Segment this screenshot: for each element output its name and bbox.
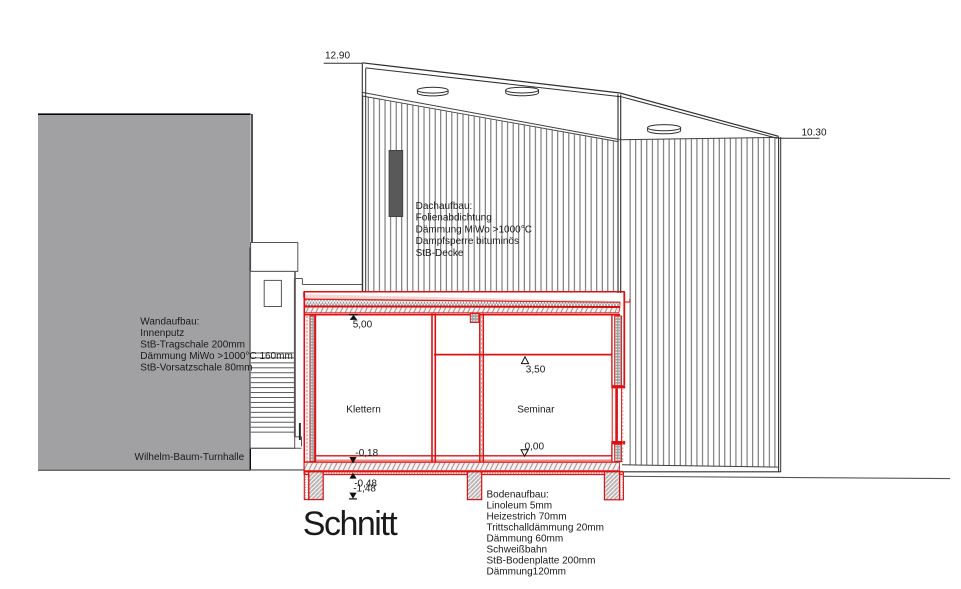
svg-text:Linoleum 5mm: Linoleum 5mm bbox=[487, 500, 553, 511]
svg-text:StB-Decke: StB-Decke bbox=[416, 248, 464, 259]
svg-text:Dampfsperre bituminös: Dampfsperre bituminös bbox=[416, 236, 519, 247]
svg-text:Dämmung MiWo >1000°C 160mm: Dämmung MiWo >1000°C 160mm bbox=[140, 351, 292, 362]
svg-text:Bodenaufbau:: Bodenaufbau: bbox=[487, 489, 549, 500]
svg-text:Innenputz: Innenputz bbox=[140, 328, 184, 339]
svg-text:Seminar: Seminar bbox=[517, 404, 555, 415]
svg-text:StB-Tragschale 200mm: StB-Tragschale 200mm bbox=[140, 340, 245, 351]
svg-text:StB-Vorsatzschale 80mm: StB-Vorsatzschale 80mm bbox=[140, 362, 252, 373]
svg-text:10.30: 10.30 bbox=[802, 127, 827, 138]
svg-text:Dachaufbau:: Dachaufbau: bbox=[416, 201, 473, 212]
svg-text:12.90: 12.90 bbox=[325, 51, 350, 62]
svg-text:Dämmung120mm: Dämmung120mm bbox=[487, 567, 566, 578]
svg-text:StB-Bodenplatte 200mm: StB-Bodenplatte 200mm bbox=[487, 556, 596, 567]
svg-text:5,00: 5,00 bbox=[353, 319, 373, 330]
svg-text:-0,18: -0,18 bbox=[355, 448, 378, 459]
svg-text:Trittschalldämmung 20mm: Trittschalldämmung 20mm bbox=[487, 522, 604, 533]
svg-text:Wilhelm-Baum-Turnhalle: Wilhelm-Baum-Turnhalle bbox=[135, 452, 245, 463]
svg-text:Klettern: Klettern bbox=[346, 404, 380, 415]
svg-text:3,50: 3,50 bbox=[526, 364, 546, 375]
svg-text:Folienabdichtung: Folienabdichtung bbox=[416, 213, 492, 224]
svg-text:Heizestrich 70mm: Heizestrich 70mm bbox=[487, 511, 567, 522]
svg-text:Schweißbahn: Schweißbahn bbox=[487, 544, 548, 555]
svg-text:-1,48: -1,48 bbox=[353, 484, 376, 495]
svg-text:Wandaufbau:: Wandaufbau: bbox=[140, 317, 199, 328]
svg-text:Dämmung MiWo >1000°C: Dämmung MiWo >1000°C bbox=[416, 224, 532, 235]
svg-text:Dämmung 60mm: Dämmung 60mm bbox=[487, 533, 564, 544]
svg-text:Schnitt: Schnitt bbox=[303, 505, 398, 543]
